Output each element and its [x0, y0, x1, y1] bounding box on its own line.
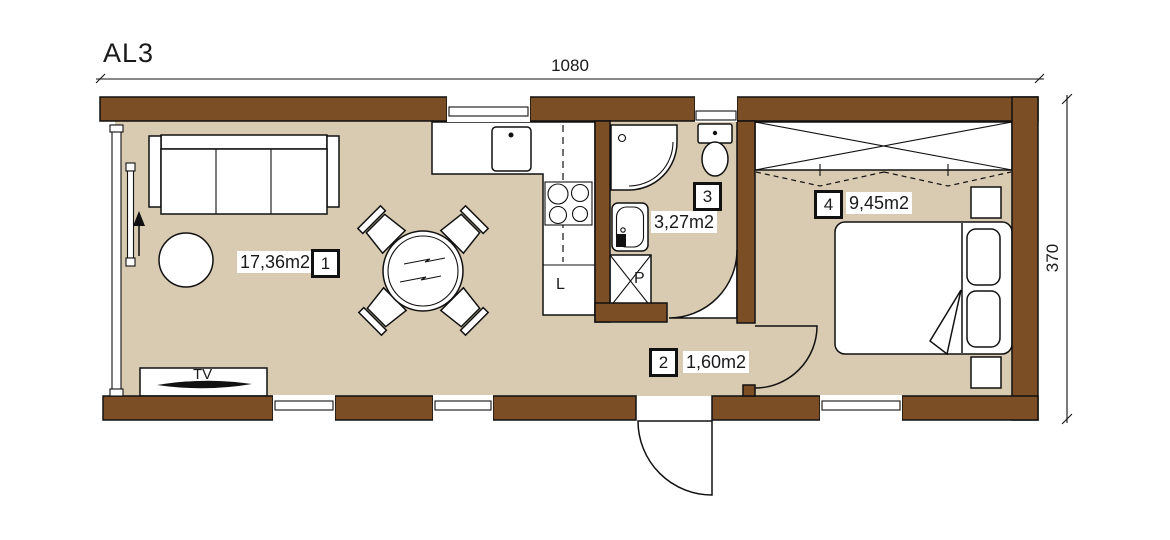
room-4-number: 4	[814, 190, 843, 219]
pillow	[967, 229, 1000, 285]
room-1-number: 1	[311, 249, 340, 278]
window-top	[447, 96, 530, 122]
radiator	[126, 163, 135, 266]
room-3-number: 3	[693, 182, 722, 211]
stove	[545, 182, 592, 225]
entrance-door	[638, 421, 712, 495]
room-2-area-label: 1,60m2	[683, 351, 749, 373]
room-1-area-label: 17,36m2	[237, 251, 313, 273]
side-table	[159, 233, 213, 287]
washbasin	[612, 203, 648, 251]
dimension-height-label: 370	[1042, 233, 1064, 283]
appliance-l-label: L	[556, 276, 565, 294]
window-bottom-3	[820, 395, 902, 421]
room-2-number: 2	[649, 348, 678, 377]
room-3-area-label: 3,27m2	[651, 211, 717, 233]
washing-machine	[610, 255, 651, 307]
window-bottom-2	[433, 395, 493, 421]
sofa	[149, 135, 339, 214]
tv-label: TV	[193, 366, 212, 383]
wardrobe	[755, 122, 1012, 176]
kitchen-sink	[492, 127, 531, 171]
pillow	[967, 291, 1000, 347]
window-left	[110, 125, 123, 396]
floor-plan-drawing	[0, 0, 1170, 540]
room-4-area-label: 9,45m2	[846, 192, 912, 214]
dining-table	[383, 231, 463, 311]
bed	[835, 222, 1012, 354]
dimension-width-label: 1080	[100, 56, 1040, 76]
window-toilet	[695, 96, 737, 122]
appliance-p-label: P	[634, 270, 645, 288]
window-bottom-1	[273, 395, 335, 421]
nightstand	[971, 187, 1001, 218]
floor-plan-canvas: AL3 1080 370 17,36m2 1 2 1,60m2 3 3,27m2…	[0, 0, 1170, 540]
nightstand	[971, 357, 1001, 388]
